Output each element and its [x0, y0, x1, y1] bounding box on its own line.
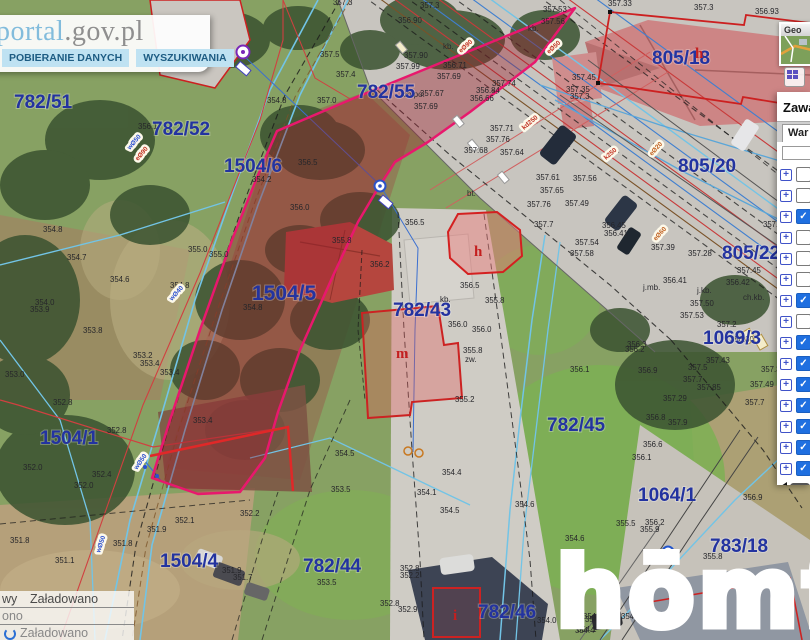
elevation-label: 357.68	[464, 146, 488, 155]
layer-checkbox[interactable]: ✓	[796, 293, 810, 308]
elevation-label: 357.3	[694, 3, 714, 12]
map-content-panel: Zawa War +++✓++++✓++✓+✓+✓+✓+✓+✓+✓	[777, 92, 810, 485]
elevation-label: 354.5	[440, 506, 460, 515]
layer-checkbox[interactable]	[796, 314, 810, 329]
expand-icon[interactable]: +	[780, 295, 792, 307]
menu-pobieranie-danych[interactable]: POBIERANIE DANYCH	[2, 49, 129, 67]
elevation-label: 352.0	[23, 463, 43, 472]
layer-checkbox[interactable]: ✓	[796, 440, 810, 455]
elevation-label: 355.9	[640, 525, 660, 534]
minimap-thumbnail[interactable]	[781, 36, 810, 62]
scroll-left-arrow[interactable]	[781, 482, 787, 485]
elevation-label: 354.5	[335, 449, 355, 458]
expand-icon[interactable]: +	[780, 211, 792, 223]
geoportal-logo[interactable]: portal.gov.pl	[0, 16, 144, 48]
status-row: Załadowano	[0, 625, 134, 640]
elevation-label: 357.33	[608, 0, 632, 8]
map-abbreviation-label: kb.	[528, 24, 539, 33]
layer-checkbox[interactable]	[796, 272, 810, 287]
elevation-label: 356.93	[755, 7, 779, 16]
status-layer-name: ono	[2, 608, 23, 624]
parcel-label: 782/51	[14, 92, 73, 113]
elevation-label: 357.5	[688, 363, 708, 372]
elevation-label: 354.6	[515, 500, 535, 509]
layer-checkbox[interactable]: ✓	[796, 461, 810, 476]
map-abbreviation-label: zw.	[465, 355, 477, 364]
elevation-label: 357.58	[570, 249, 594, 258]
elevation-label: 357.76	[486, 135, 510, 144]
elevation-label: 356.41	[663, 276, 687, 285]
layer-row: +✓	[777, 458, 810, 479]
elevation-label: 354.0	[537, 616, 557, 625]
elevation-label: 354.8	[267, 96, 287, 105]
elevation-label: 355.8	[485, 296, 505, 305]
elevation-label: 357.3	[333, 0, 353, 7]
elevation-label: 354.3	[585, 615, 605, 624]
geoportal-map-screen: 357.5357.3357.3356.90357.90357.99356.713…	[0, 0, 810, 640]
expand-icon[interactable]: +	[780, 337, 792, 349]
elevation-label: 355.5	[616, 519, 636, 528]
elevation-label: 353.5	[331, 485, 351, 494]
elevation-label: 356.0	[448, 320, 468, 329]
layer-row: +	[777, 164, 810, 185]
elevation-label: 352.8	[380, 599, 400, 608]
elevation-label: 357.39	[651, 243, 675, 252]
elevation-label: 357.65	[540, 186, 565, 195]
elevation-label: 353.4	[160, 368, 180, 377]
tab-layers[interactable]: War	[782, 124, 810, 142]
elevation-label: 357.7	[745, 398, 765, 407]
parcel-label: 1504/5	[252, 282, 317, 305]
expand-icon[interactable]: +	[780, 421, 792, 433]
parcel-label: 1504/4	[160, 551, 219, 572]
layer-row: +✓	[777, 374, 810, 395]
expand-icon[interactable]: +	[780, 253, 792, 265]
expand-icon[interactable]: +	[780, 190, 792, 202]
building-use-letter: i	[453, 608, 457, 624]
expand-icon[interactable]: +	[780, 442, 792, 454]
parcel-label: 782/43	[393, 300, 451, 321]
status-row: wy Załadowano	[0, 591, 134, 608]
layer-row: +✓	[777, 332, 810, 353]
elevation-label: 356.9	[638, 366, 658, 375]
parcel-label: 782/52	[152, 119, 210, 140]
expand-icon[interactable]: +	[780, 274, 792, 286]
expand-icon[interactable]: +	[780, 316, 792, 328]
elevation-label: 354.8	[43, 225, 63, 234]
layer-row: +✓	[777, 290, 810, 311]
elevation-label: 356.0	[290, 203, 310, 212]
elevation-label: 357.53	[680, 311, 704, 320]
expand-icon[interactable]: +	[780, 379, 792, 391]
elevation-label: 353.4	[193, 416, 213, 425]
layer-checkbox[interactable]	[796, 188, 810, 203]
scrollbar-thumb[interactable]	[790, 483, 810, 486]
elevation-label: 355.2	[455, 395, 475, 404]
elevation-label: 354.1	[417, 488, 437, 497]
elevation-label: 356.1	[632, 453, 652, 462]
expand-icon[interactable]: +	[780, 232, 792, 244]
layer-checkbox[interactable]	[796, 230, 810, 245]
elevation-label: 356.1	[570, 365, 590, 374]
elevation-label: 354.6	[565, 534, 585, 543]
elevation-label: 352.2	[240, 509, 260, 518]
elevation-label: 356.66	[470, 94, 494, 103]
elevation-label: 357.3	[420, 1, 440, 10]
elevation-label: 357.76	[527, 200, 551, 209]
elevation-label: 353.9	[30, 305, 50, 314]
elevation-label: 352.8	[107, 426, 127, 435]
parcel-label: 783/18	[710, 536, 768, 557]
parcel-label: 1064/1	[638, 485, 697, 506]
elevation-label: 351.1	[55, 556, 75, 565]
parcel-label: 1504/6	[224, 156, 282, 177]
loading-spinner-icon	[4, 628, 16, 640]
elevation-label: 357.9	[668, 418, 688, 427]
elevation-label: 351.8	[113, 539, 133, 548]
expand-icon[interactable]: +	[780, 169, 792, 181]
elevation-label: 356.2	[370, 260, 390, 269]
elevation-label: 357.43	[706, 356, 730, 365]
layer-row: +	[777, 269, 810, 290]
geoportal-header: portal.gov.pl POBIERANIE DANYCH WYSZUKIW…	[0, 15, 210, 72]
elevation-label: 357.99	[396, 62, 420, 71]
parcel-label: 782/45	[547, 415, 606, 436]
elevation-label: 353.8	[83, 326, 103, 335]
elevation-label: 357.3	[570, 92, 590, 101]
map-abbreviation-label: j.kb.	[696, 286, 712, 295]
layer-row: +	[777, 185, 810, 206]
panel-tab-strip: War	[777, 121, 810, 142]
elevation-label: 351.9	[147, 525, 167, 534]
elevation-label: 357.4	[336, 70, 356, 79]
elevation-label: 356.8	[646, 413, 666, 422]
overview-minimap[interactable]: Geo	[779, 22, 810, 66]
elevation-label: 355.8	[332, 236, 352, 245]
elevation-label: 353.4	[140, 359, 160, 368]
building-use-letter: m	[396, 346, 409, 362]
menu-wyszukiwania[interactable]: WYSZUKIWANIA	[136, 49, 233, 67]
elevation-label: 357.28	[688, 249, 712, 258]
elevation-label: 357.69	[414, 102, 438, 111]
elevation-label: 357.61	[536, 173, 560, 182]
expand-icon[interactable]: +	[780, 400, 792, 412]
elevation-label: 357.54	[575, 238, 600, 247]
map-canvas[interactable]: 357.5357.3357.3356.90357.90357.99356.713…	[0, 0, 810, 640]
elevation-label: 354.4	[442, 468, 462, 477]
parcel-label: 782/55	[357, 82, 416, 103]
layer-row: +	[777, 227, 810, 248]
elevation-label: 353.0	[5, 370, 25, 379]
elevation-label: 357.5	[320, 50, 340, 59]
status-layer-name: wy	[2, 591, 17, 607]
elevation-label: 356.5	[405, 218, 425, 227]
elevation-label: 354.7	[621, 612, 641, 621]
expand-icon[interactable]: +	[780, 463, 792, 475]
status-row: ono	[0, 608, 134, 625]
parcel-label: 805/20	[678, 156, 736, 177]
layer-list: +++✓++++✓++✓+✓+✓+✓+✓+✓+✓	[777, 164, 810, 479]
elevation-label: 357.56	[573, 174, 597, 183]
layer-checkbox[interactable]: ✓	[796, 209, 810, 224]
panel-title: Zawa	[777, 92, 810, 121]
elevation-label: 357.69	[437, 72, 461, 81]
elevation-label: 352.9	[398, 605, 418, 614]
map-abbreviation-label: kb.	[443, 42, 454, 51]
elevation-label: 357.0	[317, 96, 337, 105]
elevation-label: 356.90	[398, 16, 423, 25]
parcel-label: 782/46	[478, 602, 536, 623]
layer-loading-status-panel: wy Załadowano ono Załadowano	[0, 591, 134, 640]
map-abbreviation-label: j.mb.	[642, 283, 660, 292]
elevation-label: 354.1	[577, 625, 597, 634]
parcel-label: 782/44	[303, 556, 362, 577]
elevation-label: 354.6	[110, 275, 130, 284]
elevation-label: 357.71	[490, 124, 514, 133]
elevation-label: 356.9	[743, 493, 763, 502]
elevation-label: 357.56	[541, 17, 565, 26]
elevation-label: 356.71	[443, 61, 467, 70]
horizontal-scrollbar	[777, 479, 810, 485]
logo-text-blue: portal	[0, 16, 64, 47]
elevation-label: 357.45	[737, 266, 762, 275]
elevation-label: 357.90	[404, 51, 429, 60]
layer-row: +✓	[777, 395, 810, 416]
layer-checkbox[interactable]: ✓	[796, 335, 810, 350]
elevation-label: 356.5	[460, 281, 480, 290]
layer-row: +✓	[777, 416, 810, 437]
elevation-label: 357.29	[663, 394, 687, 403]
layer-checkbox[interactable]: ✓	[796, 419, 810, 434]
elevation-label: 356.5	[298, 158, 318, 167]
layer-row: +✓	[777, 353, 810, 374]
layer-search-input[interactable]	[782, 146, 810, 160]
elevation-label: 355.0	[209, 250, 229, 259]
parcel-label: 1504/1	[40, 428, 99, 449]
elevation-label: 356.41	[604, 229, 628, 238]
elevation-label: 352.2	[400, 571, 420, 580]
elevation-label: 354.7	[67, 253, 87, 262]
building-use-letter: h	[474, 244, 483, 260]
header-menu: POBIERANIE DANYCH WYSZUKIWANIA	[2, 49, 234, 67]
elevation-label: 353.5	[317, 578, 337, 587]
elevation-label: 352.4	[92, 470, 112, 479]
layers-widget-icon[interactable]	[784, 67, 805, 87]
elevation-label: 357.49	[750, 380, 774, 389]
layer-checkbox[interactable]: ✓	[796, 356, 810, 371]
layer-row: +	[777, 248, 810, 269]
elevation-label: 352.8	[53, 398, 73, 407]
parcel-label: 805/22	[722, 243, 780, 264]
elevation-label: 352.0	[74, 481, 94, 490]
elevation-label: 356.2	[625, 345, 645, 354]
elevation-label: 357.50	[690, 299, 715, 308]
layer-row: +	[777, 311, 810, 332]
layer-row: +✓	[777, 206, 810, 227]
logo-text-gray: .gov.pl	[64, 16, 143, 47]
elevation-label: 355.8	[463, 346, 483, 355]
elevation-label: 357.45	[572, 73, 597, 82]
elevation-label: 357.53	[543, 5, 567, 14]
elevation-label: 351.7	[233, 573, 253, 582]
elevation-label: 351.8	[10, 536, 30, 545]
building-use-letter: h	[695, 46, 704, 62]
status-value: Załadowano	[20, 626, 88, 640]
map-abbreviation-label: bt.	[467, 189, 476, 198]
elevation-label: 356.6	[643, 440, 663, 449]
elevation-label: 356.42	[726, 278, 750, 287]
layer-checkbox[interactable]: ✓	[796, 377, 810, 392]
elevation-label: 355.0	[188, 245, 208, 254]
layer-checkbox[interactable]	[796, 251, 810, 266]
layer-checkbox[interactable]	[796, 167, 810, 182]
elevation-label: 357.85	[697, 383, 722, 392]
elevation-label: 356.0	[472, 325, 492, 334]
map-abbreviation-label: ch.kb.	[743, 293, 764, 302]
parcel-label: 1069/3	[703, 328, 761, 349]
elevation-label: 357.64	[500, 148, 525, 157]
status-value: Załadowano	[30, 591, 98, 607]
layer-row: +✓	[777, 437, 810, 458]
elevation-label: 357.7	[534, 220, 554, 229]
elevation-label: 357.49	[565, 199, 589, 208]
layer-checkbox[interactable]: ✓	[796, 398, 810, 413]
expand-icon[interactable]: +	[780, 358, 792, 370]
elevation-label: 352.1	[175, 516, 195, 525]
elevation-label: 357.74	[492, 79, 517, 88]
minimap-title: Geo	[781, 24, 810, 36]
